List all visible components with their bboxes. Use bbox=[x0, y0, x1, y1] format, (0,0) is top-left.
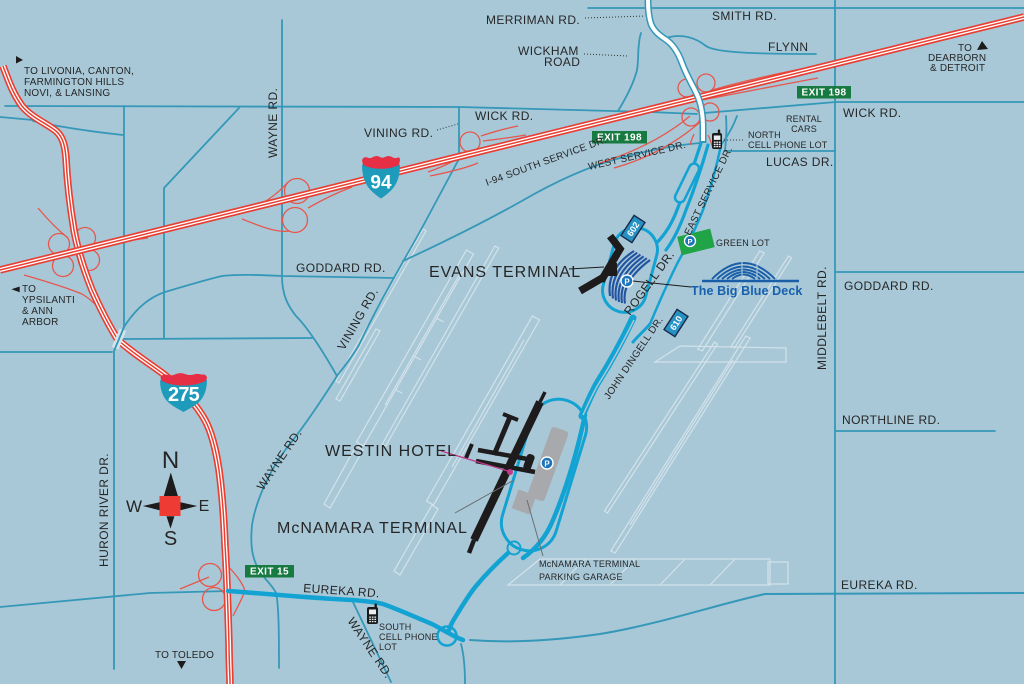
svg-text:NORTH: NORTH bbox=[748, 130, 781, 140]
svg-text:CELL PHONE LOT: CELL PHONE LOT bbox=[748, 140, 828, 150]
svg-text:S: S bbox=[164, 528, 177, 550]
svg-text:VINING RD.: VINING RD. bbox=[364, 126, 433, 140]
svg-text:& DETROIT: & DETROIT bbox=[930, 63, 985, 74]
svg-text:GODDARD RD.: GODDARD RD. bbox=[296, 261, 386, 275]
svg-text:TO TOLEDO: TO TOLEDO bbox=[155, 650, 214, 661]
svg-text:SMITH RD.: SMITH RD. bbox=[712, 9, 777, 23]
svg-text:EXIT 15: EXIT 15 bbox=[250, 567, 289, 578]
svg-text:CELL PHONE: CELL PHONE bbox=[379, 632, 438, 642]
svg-text:94: 94 bbox=[370, 173, 392, 194]
svg-text:McNAMARA TERMINAL: McNAMARA TERMINAL bbox=[277, 520, 468, 537]
svg-text:P: P bbox=[544, 460, 550, 469]
svg-text:NORTHLINE RD.: NORTHLINE RD. bbox=[842, 413, 940, 427]
svg-text:WICK RD.: WICK RD. bbox=[843, 106, 902, 120]
svg-text:GODDARD RD.: GODDARD RD. bbox=[844, 279, 934, 293]
svg-text:NOVI, & LANSING: NOVI, & LANSING bbox=[24, 88, 110, 99]
svg-text:EVANS TERMINAL: EVANS TERMINAL bbox=[429, 264, 581, 281]
svg-text:SOUTH: SOUTH bbox=[379, 622, 412, 632]
svg-text:McNAMARA TERMINAL: McNAMARA TERMINAL bbox=[539, 559, 640, 569]
svg-text:RENTAL: RENTAL bbox=[786, 114, 822, 124]
svg-text:EXIT 198: EXIT 198 bbox=[802, 88, 847, 99]
svg-text:TO LIVONIA, CANTON,: TO LIVONIA, CANTON, bbox=[24, 66, 134, 77]
svg-text:HURON RIVER DR.: HURON RIVER DR. bbox=[97, 453, 111, 567]
svg-text:PARKING GARAGE: PARKING GARAGE bbox=[539, 572, 623, 582]
svg-text:ROAD: ROAD bbox=[544, 55, 580, 69]
svg-text:MERRIMAN RD.: MERRIMAN RD. bbox=[486, 13, 580, 27]
svg-text:& ANN: & ANN bbox=[22, 306, 53, 317]
svg-text:WESTIN HOTEL: WESTIN HOTEL bbox=[325, 443, 457, 460]
svg-text:ARBOR: ARBOR bbox=[22, 317, 59, 328]
svg-text:YPSILANTI: YPSILANTI bbox=[22, 295, 75, 306]
svg-text:W: W bbox=[126, 497, 142, 516]
svg-text:E: E bbox=[199, 498, 210, 515]
svg-text:TO: TO bbox=[22, 284, 36, 295]
svg-text:LOT: LOT bbox=[379, 642, 397, 652]
svg-text:FARMINGTON HILLS: FARMINGTON HILLS bbox=[24, 77, 124, 88]
svg-text:GREEN LOT: GREEN LOT bbox=[716, 238, 770, 248]
svg-text:MIDDLEBELT RD.: MIDDLEBELT RD. bbox=[815, 266, 829, 370]
svg-text:The Big Blue Deck: The Big Blue Deck bbox=[691, 284, 802, 298]
svg-text:WICK RD.: WICK RD. bbox=[475, 109, 534, 123]
svg-text:P: P bbox=[687, 237, 692, 246]
svg-text:WAYNE RD.: WAYNE RD. bbox=[266, 88, 280, 158]
svg-text:FLYNN: FLYNN bbox=[768, 40, 808, 54]
svg-text:LUCAS DR.: LUCAS DR. bbox=[766, 155, 834, 169]
svg-text:EUREKA RD.: EUREKA RD. bbox=[841, 578, 918, 592]
svg-text:CARS: CARS bbox=[791, 124, 817, 134]
svg-text:275: 275 bbox=[168, 384, 200, 406]
svg-text:P: P bbox=[624, 278, 630, 287]
svg-text:N: N bbox=[162, 447, 179, 474]
